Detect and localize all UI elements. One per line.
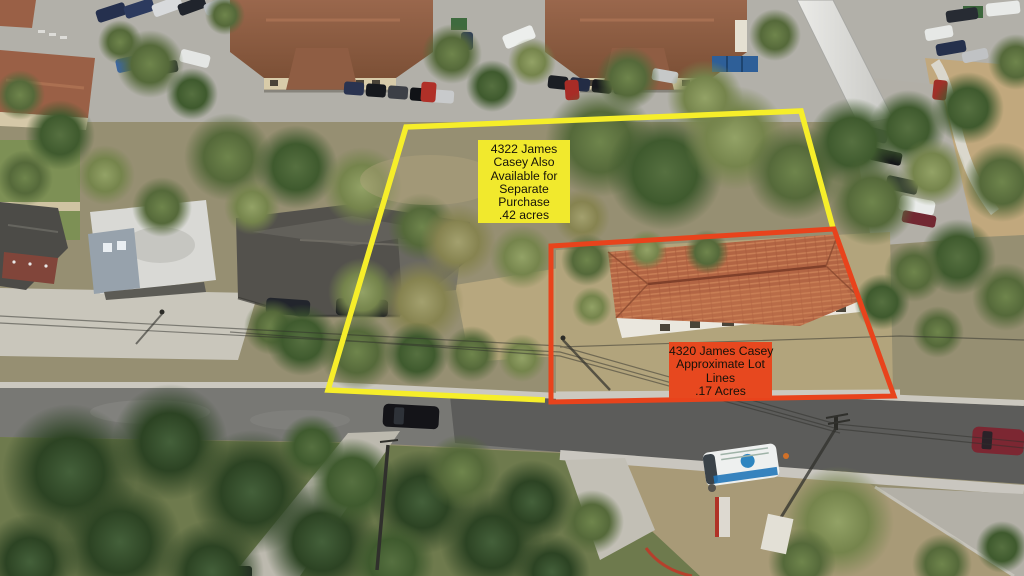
lot-4322-label-line: Purchase [478,196,570,209]
monument-sign [719,497,730,537]
lot-4322-label-line: 4322 James [478,143,570,156]
aerial-photo-scene [0,0,1024,576]
manhole [708,484,716,492]
lot-4322-label-line: Available for [478,170,570,183]
lot-4322-label-line: Casey Also [478,156,570,169]
monument-sign-edge [715,497,719,537]
lot-4322-label-line: .42 acres [478,209,570,222]
lot-4320-label: 4320 James Casey Approximate Lot Lines .… [669,342,772,398]
left-courtyard [0,288,258,360]
lot-4322-label: 4322 James Casey Also Available for Sepa… [478,140,570,223]
lot-4320-label-line: Lines [669,372,772,385]
aerial-photo: 4322 James Casey Also Available for Sepa… [0,0,1024,576]
lot-4320-label-line: 4320 James Casey [669,345,772,358]
lot-4322-label-line: Separate [478,183,570,196]
black-suv-on-road [382,404,439,430]
lot-4320-label-line: .17 Acres [669,385,772,398]
traffic-cone [783,453,789,459]
lot-4320-label-line: Approximate Lot [669,358,772,371]
